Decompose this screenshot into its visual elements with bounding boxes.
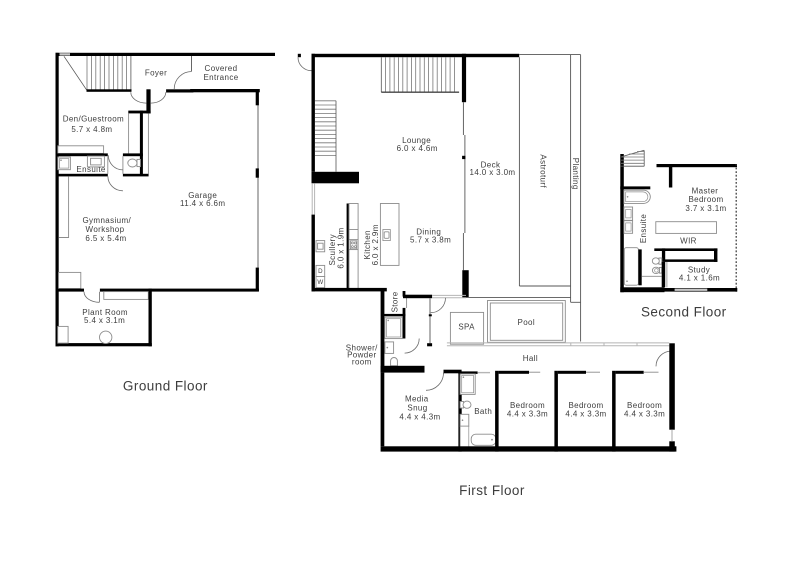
svg-text:4.4 x 3.3m: 4.4 x 3.3m: [507, 409, 548, 418]
svg-text:Covered: Covered: [205, 64, 238, 73]
svg-text:Snug: Snug: [407, 403, 427, 412]
svg-text:Workshop: Workshop: [86, 225, 125, 234]
svg-text:4.4 x 3.3m: 4.4 x 3.3m: [624, 409, 665, 418]
svg-text:5.7 x 3.8m: 5.7 x 3.8m: [410, 235, 451, 244]
svg-text:Den/Guestroom: Den/Guestroom: [63, 115, 124, 124]
svg-text:Media: Media: [405, 394, 429, 403]
svg-text:Bath: Bath: [474, 407, 492, 416]
svg-text:Second Floor: Second Floor: [641, 305, 727, 320]
svg-text:Bedroom: Bedroom: [688, 195, 723, 204]
svg-text:6.5 x 5.4m: 6.5 x 5.4m: [85, 234, 126, 243]
svg-text:First Floor: First Floor: [459, 483, 525, 498]
svg-text:14.0 x 3.0m: 14.0 x 3.0m: [470, 168, 516, 177]
svg-text:Ensuite: Ensuite: [639, 214, 648, 244]
svg-text:6.0 x 4.6m: 6.0 x 4.6m: [397, 144, 438, 153]
svg-text:4.1 x 1.6m: 4.1 x 1.6m: [679, 273, 720, 282]
svg-text:Astroturf: Astroturf: [539, 154, 548, 188]
svg-text:Store: Store: [390, 291, 399, 312]
svg-text:SPA: SPA: [458, 323, 475, 332]
svg-text:Pool: Pool: [518, 318, 536, 327]
svg-text:Gymnasium/: Gymnasium/: [82, 216, 131, 225]
svg-text:4.4 x 4.3m: 4.4 x 4.3m: [399, 412, 440, 421]
svg-text:Foyer: Foyer: [145, 68, 167, 77]
svg-text:Entrance: Entrance: [203, 73, 238, 82]
svg-text:D: D: [318, 268, 323, 275]
svg-text:room: room: [352, 358, 372, 367]
svg-text:6.0 x 2.9m: 6.0 x 2.9m: [371, 224, 380, 265]
svg-text:WIR: WIR: [680, 236, 697, 245]
svg-text:3.7 x 3.1m: 3.7 x 3.1m: [685, 204, 726, 213]
svg-text:4.4 x 3.3m: 4.4 x 3.3m: [565, 409, 606, 418]
svg-text:W: W: [317, 279, 323, 286]
svg-text:Planting: Planting: [571, 158, 580, 190]
svg-text:5.7 x 4.8m: 5.7 x 4.8m: [71, 125, 112, 134]
svg-text:6.0 x 1.9m: 6.0 x 1.9m: [337, 227, 346, 268]
svg-text:Ground Floor: Ground Floor: [123, 379, 208, 394]
svg-text:11.4 x 6.6m: 11.4 x 6.6m: [180, 199, 225, 208]
svg-text:Hall: Hall: [523, 354, 538, 363]
svg-text:5.4 x 3.1m: 5.4 x 3.1m: [84, 316, 125, 325]
